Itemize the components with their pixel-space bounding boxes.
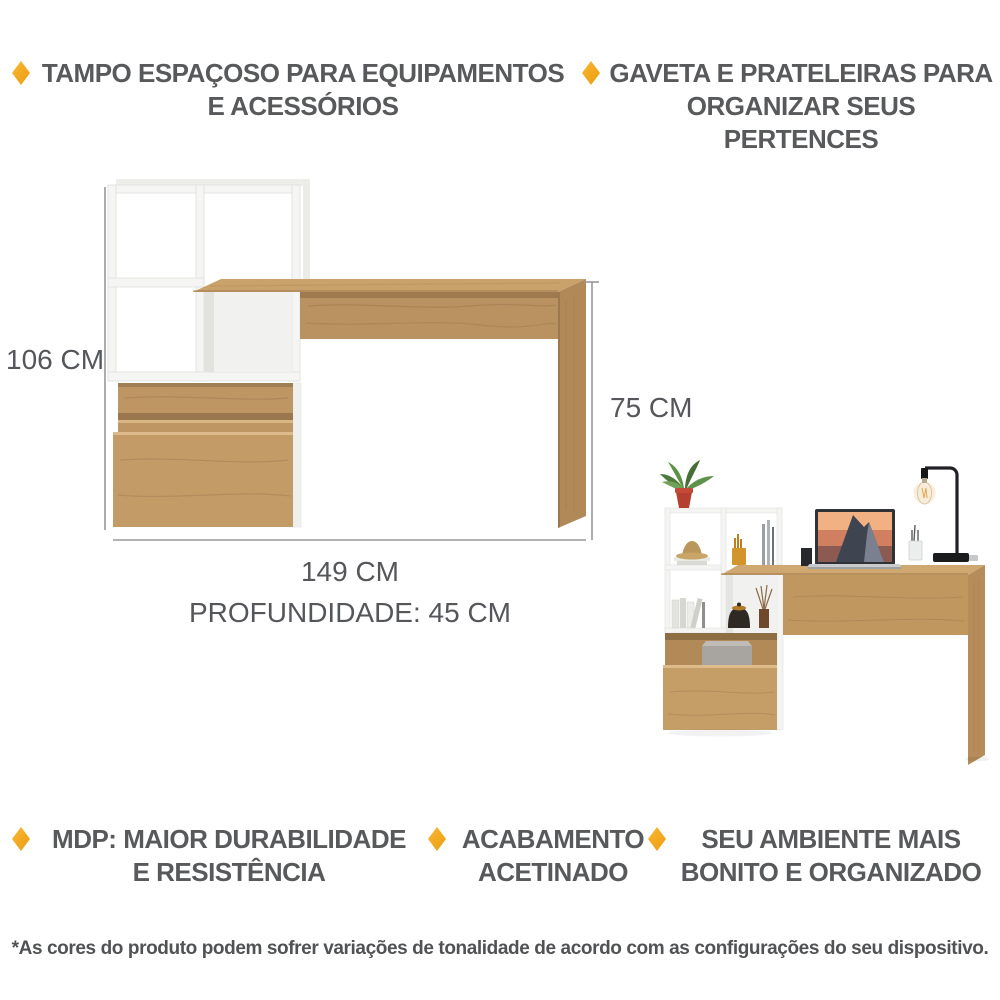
shelf-back-panel (204, 287, 292, 372)
diamond-bullet-icon (582, 61, 600, 85)
feature-line: SEU AMBIENTE MAIS (674, 823, 988, 856)
photo-pen-cup (909, 525, 922, 560)
feature-line: GAVETA E PRATELEIRAS PARA (608, 57, 994, 90)
photo-plant (660, 460, 714, 508)
product-photo (628, 412, 1000, 770)
shelf-depth-edges (116, 179, 310, 285)
feature-line: ACABAMENTO (454, 823, 652, 856)
feature-bottom-right: SEU AMBIENTE MAIS BONITO E ORGANIZADO (648, 823, 988, 889)
feature-line: TAMPO ESPAÇOSO PARA EQUIPAMENTOS (38, 57, 568, 90)
photo-drawer-unit (663, 633, 777, 737)
desk-side-panel (558, 279, 586, 528)
feature-bottom-middle: ACABAMENTO ACETINADO (428, 823, 652, 889)
diamond-bullet-icon (12, 827, 30, 851)
depth-dimension-label: PROFUNDIDADE: 45 CM (150, 596, 550, 629)
feature-top-left: TAMPO ESPAÇOSO PARA EQUIPAMENTOS E ACESS… (12, 57, 568, 123)
feature-bottom-left: MDP: MAIOR DURABILIDADE E RESISTÊNCIA (12, 823, 420, 889)
storage-box (702, 646, 752, 665)
diamond-bullet-icon (428, 827, 446, 851)
feature-line: E ACESSÓRIOS (38, 90, 568, 123)
feature-line: MDP: MAIOR DURABILIDADE (38, 823, 420, 856)
diamond-bullet-icon (648, 827, 666, 851)
drawer-front (113, 432, 293, 527)
diamond-bullet-icon (12, 61, 30, 85)
product-infographic: TAMPO ESPAÇOSO PARA EQUIPAMENTOS E ACESS… (0, 0, 1000, 1000)
feature-text: TAMPO ESPAÇOSO PARA EQUIPAMENTOS E ACESS… (38, 57, 568, 123)
pencil-cup (732, 548, 746, 565)
feature-text: SEU AMBIENTE MAIS BONITO E ORGANIZADO (674, 823, 988, 889)
color-disclaimer: *As cores do produto podem sofrer variaç… (0, 938, 1000, 960)
books (672, 600, 679, 628)
photo-desk-lamp (914, 468, 979, 562)
lamp-base (933, 553, 969, 562)
feature-line: ORGANIZAR SEUS PERTENCES (608, 90, 994, 156)
height-dimension-label: 106 CM (6, 343, 104, 376)
feature-line: ACETINADO (454, 856, 652, 889)
rulers (762, 524, 765, 565)
feature-line: E RESISTÊNCIA (38, 856, 420, 889)
desk-apron (300, 292, 558, 339)
feature-text: ACABAMENTO ACETINADO (454, 823, 652, 889)
reed-diffuser (759, 609, 769, 628)
feature-top-right: GAVETA E PRATELEIRAS PARA ORGANIZAR SEUS… (582, 57, 994, 156)
drawer-unit (113, 383, 301, 527)
feature-line: BONITO E ORGANIZADO (674, 856, 988, 889)
width-dimension-label: 149 CM (250, 555, 450, 588)
feature-text: MDP: MAIOR DURABILIDADE E RESISTÊNCIA (38, 823, 420, 889)
photo-laptop (801, 509, 901, 569)
feature-text: GAVETA E PRATELEIRAS PARA ORGANIZAR SEUS… (608, 57, 994, 156)
